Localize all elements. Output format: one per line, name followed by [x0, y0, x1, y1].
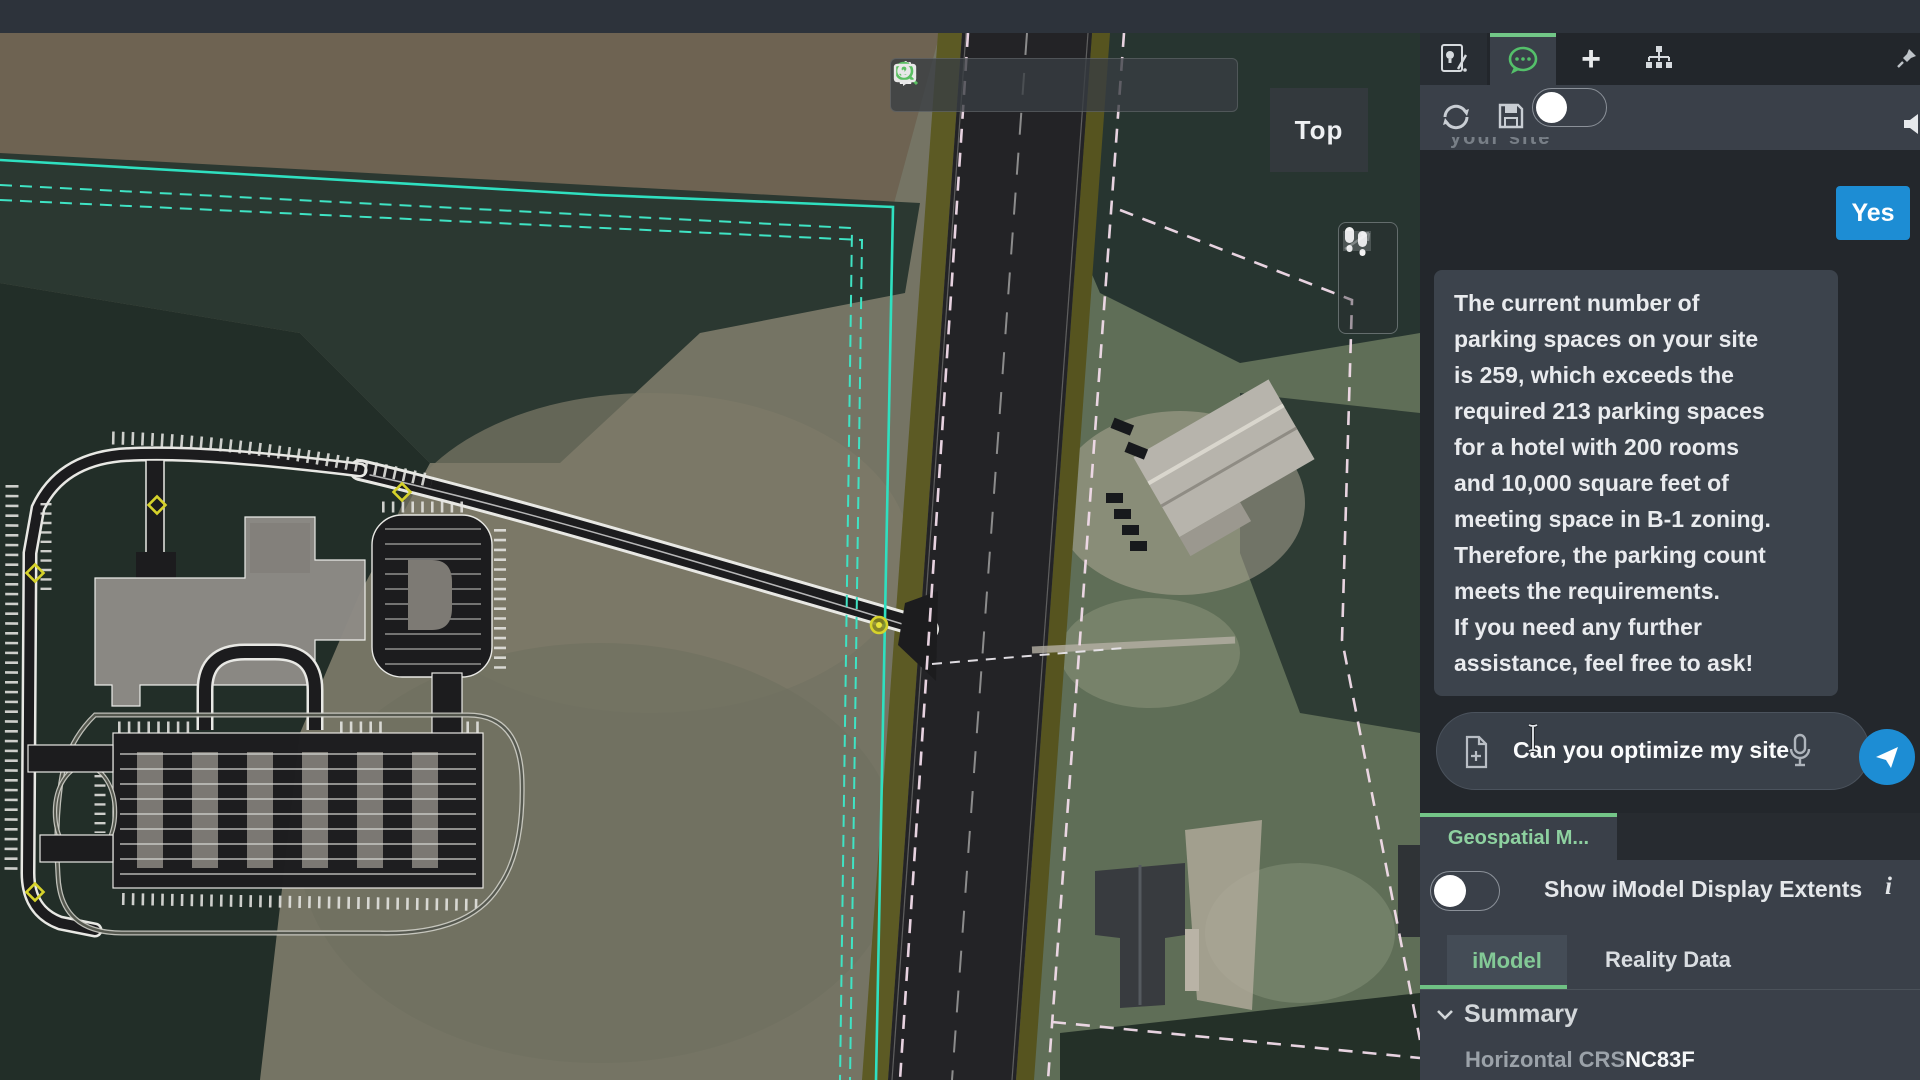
next-view-button[interactable]	[1186, 63, 1230, 107]
view-cube-top[interactable]: Top	[1270, 88, 1368, 172]
fit-view-button[interactable]	[1013, 63, 1057, 107]
summary-title: Summary	[1464, 1000, 1578, 1029]
orient-camera-icon[interactable]	[1339, 223, 1375, 259]
record-toggle[interactable]	[1532, 88, 1607, 127]
map-navigation-toolbar	[890, 58, 1238, 112]
chat-input[interactable]: Can you optimize my site	[1436, 712, 1870, 790]
chat-input-value[interactable]: Can you optimize my site	[1513, 737, 1789, 764]
crs-value: NC83F	[1625, 1047, 1695, 1072]
refresh-icon[interactable]	[1440, 101, 1472, 133]
tab-hierarchy[interactable]	[1626, 33, 1692, 85]
chevron-down-icon	[1436, 1009, 1454, 1021]
tab-geospatial-mode[interactable]: Geospatial M...	[1420, 813, 1617, 860]
window-top-bar	[0, 0, 1920, 33]
text-cursor-icon	[1525, 723, 1541, 753]
save-icon[interactable]	[1496, 101, 1526, 131]
crs-label: Horizontal CRS	[1465, 1047, 1625, 1072]
send-paper-plane-icon	[1873, 743, 1901, 771]
tab-add[interactable]: +	[1558, 33, 1624, 85]
pin-panel-icon[interactable]	[1896, 47, 1918, 69]
chat-bubble-icon	[1506, 45, 1540, 77]
info-icon[interactable]: i	[1885, 873, 1892, 901]
send-button[interactable]	[1859, 729, 1915, 785]
tab-imodel[interactable]: iModel	[1447, 935, 1567, 986]
zoom-selection-button[interactable]	[1071, 63, 1115, 107]
tab-insights[interactable]	[1420, 33, 1487, 85]
widget-tab-strip: Geospatial M...	[1420, 813, 1920, 860]
previous-view-button[interactable]	[1128, 63, 1172, 107]
panel-tab-bar: +	[1420, 33, 1920, 85]
active-tab-underline	[1420, 985, 1567, 989]
walk-tools	[1338, 222, 1398, 334]
map-canvas[interactable]	[0, 33, 1420, 1080]
microphone-icon[interactable]	[1787, 733, 1813, 769]
hierarchy-icon	[1643, 44, 1675, 74]
plus-icon: +	[1581, 40, 1601, 79]
pan-view-button[interactable]	[955, 63, 999, 107]
scrolled-message-fragment: your site	[1450, 137, 1710, 151]
summary-row-crs: Horizontal CRSNC83F	[1465, 1047, 1695, 1073]
yes-button[interactable]: Yes	[1836, 186, 1910, 240]
divider	[1420, 989, 1920, 990]
show-extents-toggle[interactable]	[1430, 871, 1500, 911]
map-viewport[interactable]: Top	[0, 33, 1420, 1080]
tab-reality-data[interactable]: Reality Data	[1605, 947, 1731, 973]
summary-section-header[interactable]: Summary	[1436, 1000, 1578, 1029]
assistant-message: The current number of parking spaces on …	[1434, 270, 1838, 696]
attach-document-icon[interactable]	[1461, 735, 1491, 769]
lightbulb-card-icon	[1439, 43, 1469, 75]
source-subtabs: iModel Reality Data	[1420, 935, 1920, 990]
next-view-icon	[891, 59, 919, 87]
view-cube-label: Top	[1295, 115, 1344, 146]
tab-chat-active[interactable]	[1490, 33, 1556, 85]
right-panel: +	[1420, 33, 1920, 1080]
voice-output-icon[interactable]	[1902, 111, 1920, 137]
show-extents-label: Show iModel Display Extents	[1544, 876, 1862, 903]
